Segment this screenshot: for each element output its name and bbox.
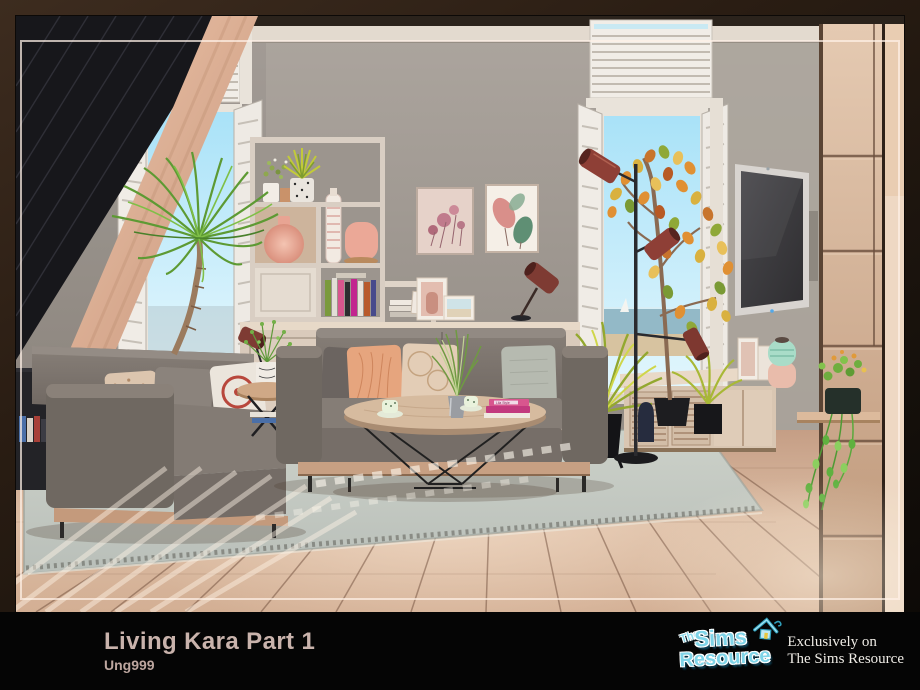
tv — [735, 164, 818, 316]
brand-block: The Sims Resource Exclusively on The Sim… — [679, 625, 904, 677]
book-spine-label: Lila Style — [496, 401, 510, 405]
caption-bar: Living Kara Part 1 Ung999 The Sims Resou… — [0, 612, 920, 690]
creator-name: Ung999 — [104, 657, 315, 673]
pillow-peach — [347, 345, 404, 406]
wall-art-left — [417, 188, 473, 254]
title-block: Living Kara Part 1 Ung999 — [104, 629, 315, 673]
tagline: Exclusively on The Sims Resource — [787, 634, 904, 668]
tsr-house-icon — [751, 616, 783, 643]
table-books: Lila Style — [484, 399, 530, 418]
pink-wide-vase — [344, 222, 378, 265]
pillow-gray-green — [501, 345, 557, 405]
wall-art-right — [486, 185, 538, 252]
tsr-logo: The Sims Resource — [678, 623, 777, 680]
teal-vase — [768, 337, 796, 388]
tagline-line2: The Sims Resource — [787, 651, 904, 668]
promo-poster: Lila Style — [0, 0, 920, 690]
striped-bottle-vase — [326, 188, 341, 263]
tagline-line1: Exclusively on — [787, 634, 904, 651]
scene-render: Lila Style — [16, 16, 904, 612]
logo-word-resource: Resource — [679, 645, 771, 673]
scene-frame: Lila Style — [16, 16, 904, 612]
set-title: Living Kara Part 1 — [104, 629, 315, 654]
